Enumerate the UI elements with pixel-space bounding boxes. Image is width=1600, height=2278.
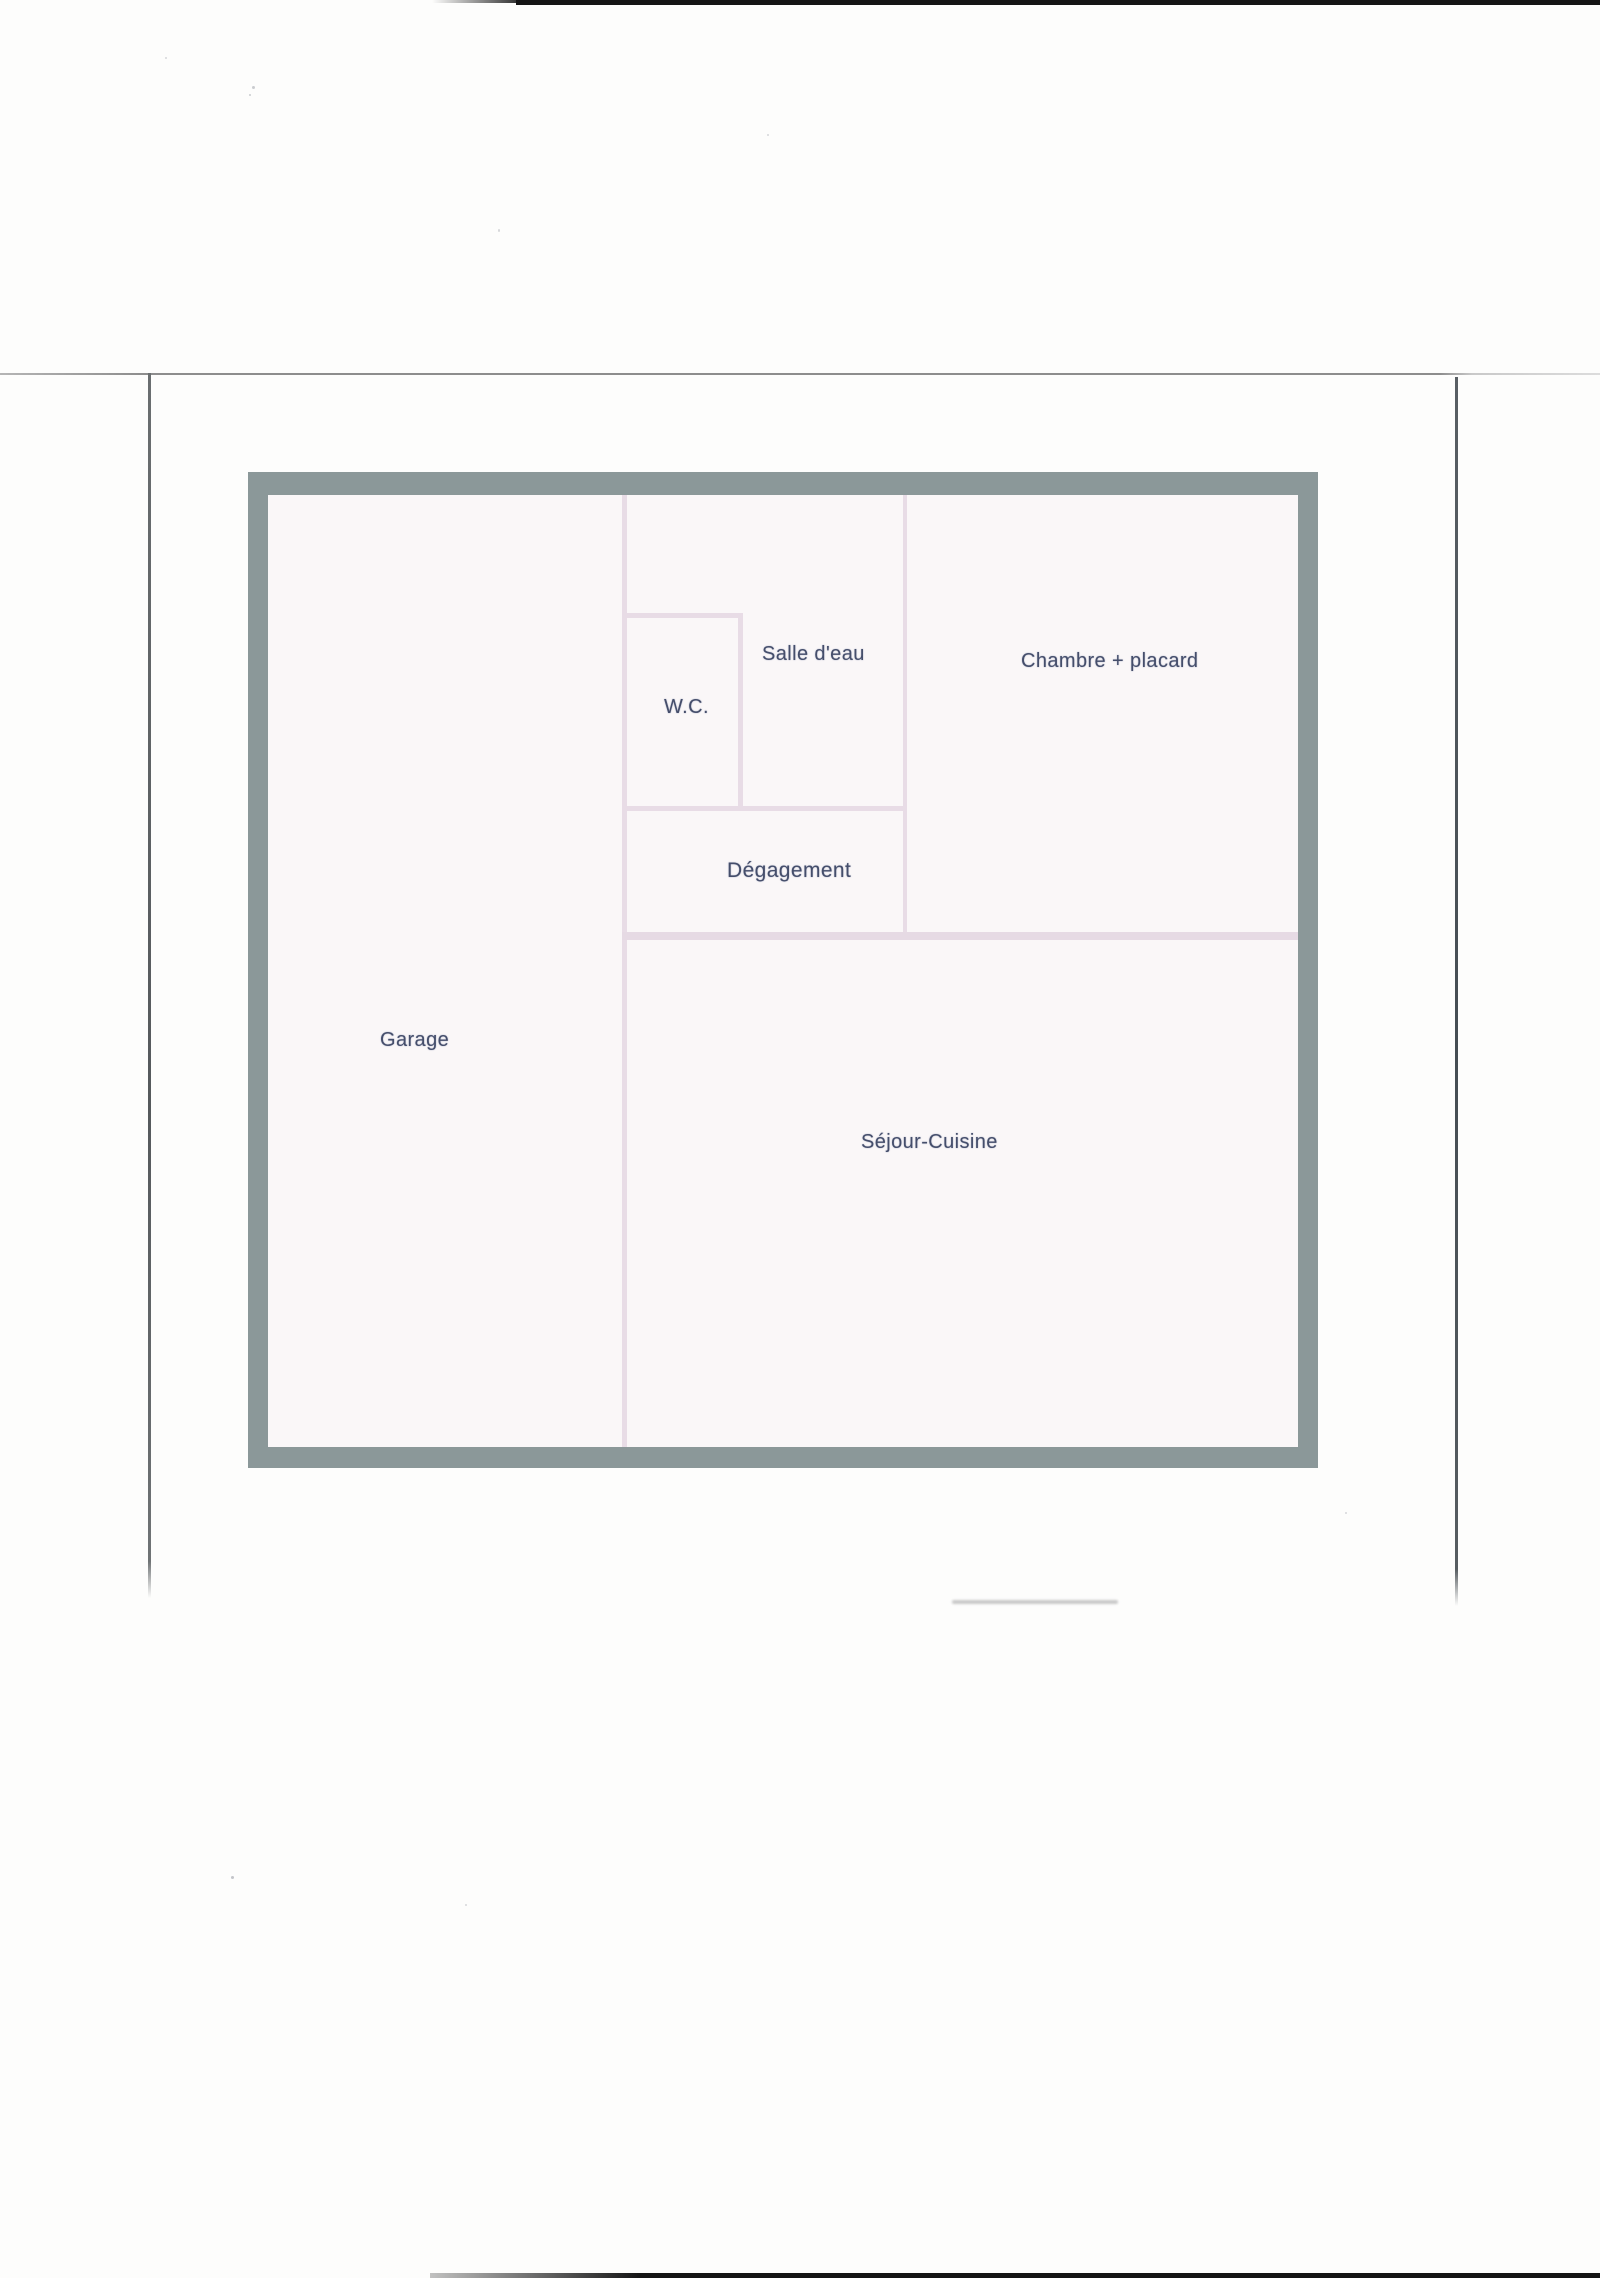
scan-speck xyxy=(165,57,167,59)
scan-speck xyxy=(767,134,769,136)
wall-wc-top xyxy=(622,613,743,618)
scan-speck xyxy=(498,229,500,232)
room-label-chambre-placard: Chambre + placard xyxy=(1021,650,1198,673)
scan-smudge xyxy=(952,1600,1118,1604)
room-label-garage: Garage xyxy=(380,1029,449,1052)
scanned-page: Garage W.C. Salle d'eau Chambre + placar… xyxy=(0,0,1600,2278)
page-frame-left-line xyxy=(148,373,151,1598)
room-label-salle-deau: Salle d'eau xyxy=(762,643,865,666)
page-frame-right-line xyxy=(1455,377,1458,1606)
wall-degagement-top xyxy=(622,806,907,811)
wall-wc-right xyxy=(738,613,743,811)
scan-speck xyxy=(231,1876,234,1879)
scan-speck xyxy=(249,94,251,96)
scan-artifact-top-bar-fade xyxy=(432,0,516,3)
scan-speck xyxy=(252,86,255,89)
room-label-degagement: Dégagement xyxy=(727,859,851,883)
scan-artifact-bottom-bar xyxy=(430,2273,1600,2278)
floor-plan xyxy=(248,472,1318,1468)
wall-garage-separator xyxy=(622,495,627,1447)
page-frame-horizontal-line xyxy=(0,373,1600,375)
scan-speck xyxy=(465,1904,467,1906)
room-label-wc: W.C. xyxy=(664,696,709,719)
scan-speck xyxy=(1345,1512,1347,1514)
room-label-sejour-cuisine: Séjour-Cuisine xyxy=(861,1131,998,1154)
scan-artifact-top-bar xyxy=(516,0,1600,5)
wall-sejour-cuisine-top xyxy=(622,932,1298,940)
wall-chambre-separator xyxy=(903,495,907,939)
